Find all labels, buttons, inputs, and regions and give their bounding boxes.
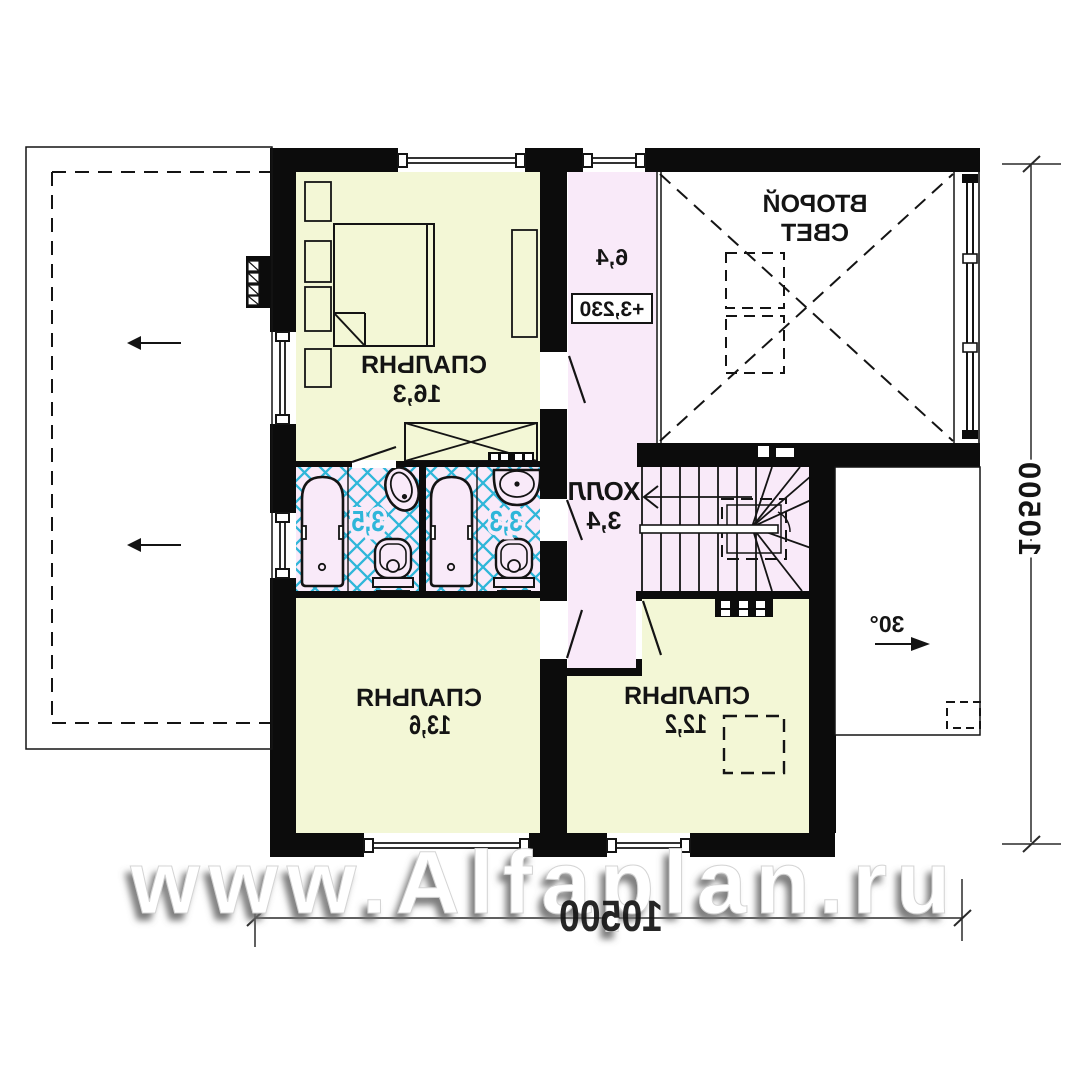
svg-text:ВТОРОЙ: ВТОРОЙ: [763, 189, 868, 218]
svg-text:6,4: 6,4: [596, 244, 628, 270]
svg-text:СПАЛЬНЯ: СПАЛЬНЯ: [356, 684, 482, 712]
svg-text:3,3: 3,3: [489, 506, 522, 538]
svg-text:СВЕТ: СВЕТ: [781, 219, 849, 247]
svg-text:12,2: 12,2: [665, 709, 707, 739]
svg-text:+3,230: +3,230: [580, 298, 645, 321]
svg-text:ХОЛЛ: ХОЛЛ: [568, 476, 641, 506]
svg-text:СПАЛЬНЯ: СПАЛЬНЯ: [624, 682, 750, 710]
svg-text:10500: 10500: [559, 892, 663, 941]
svg-text:30°: 30°: [870, 611, 905, 637]
svg-text:СПАЛЬНЯ: СПАЛЬНЯ: [361, 351, 487, 379]
svg-text:13,6: 13,6: [409, 710, 451, 740]
svg-text:3,4: 3,4: [587, 507, 622, 535]
svg-text:10500: 10500: [1012, 460, 1047, 556]
svg-text:www.Alfaplan.ru: www.Alfaplan.ru: [130, 832, 960, 932]
svg-text:16,3: 16,3: [393, 380, 442, 408]
svg-text:3,5: 3,5: [351, 506, 384, 538]
